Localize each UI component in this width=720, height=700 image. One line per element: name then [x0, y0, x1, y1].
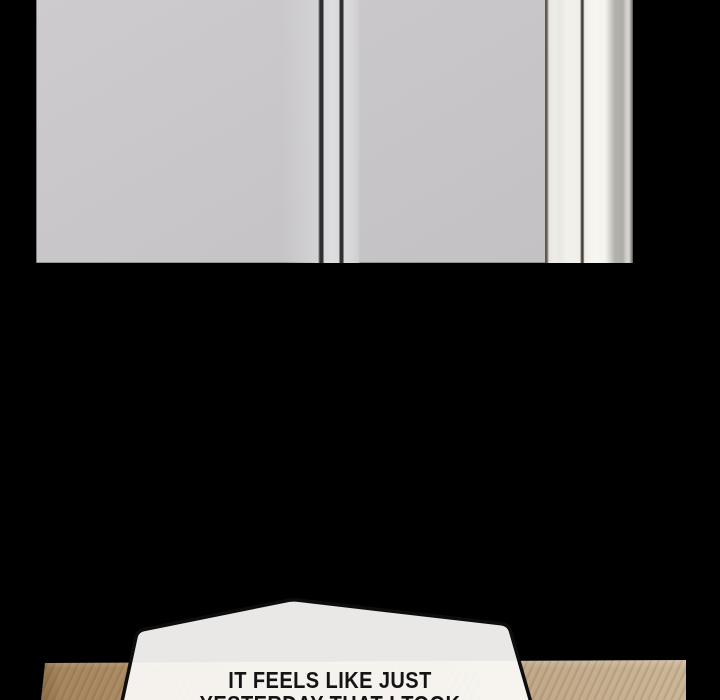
- dialogue-line-2: YESTERDAY THAT I TOOK: [165, 692, 496, 700]
- dialogue-line-1: IT FEELS LIKE JUST: [165, 668, 496, 692]
- comic-page: IT FEELS LIKE JUST YESTERDAY THAT I TOOK: [0, 0, 720, 700]
- dialogue: IT FEELS LIKE JUST YESTERDAY THAT I TOOK: [165, 668, 496, 700]
- speech-bubble-layer: [0, 0, 720, 700]
